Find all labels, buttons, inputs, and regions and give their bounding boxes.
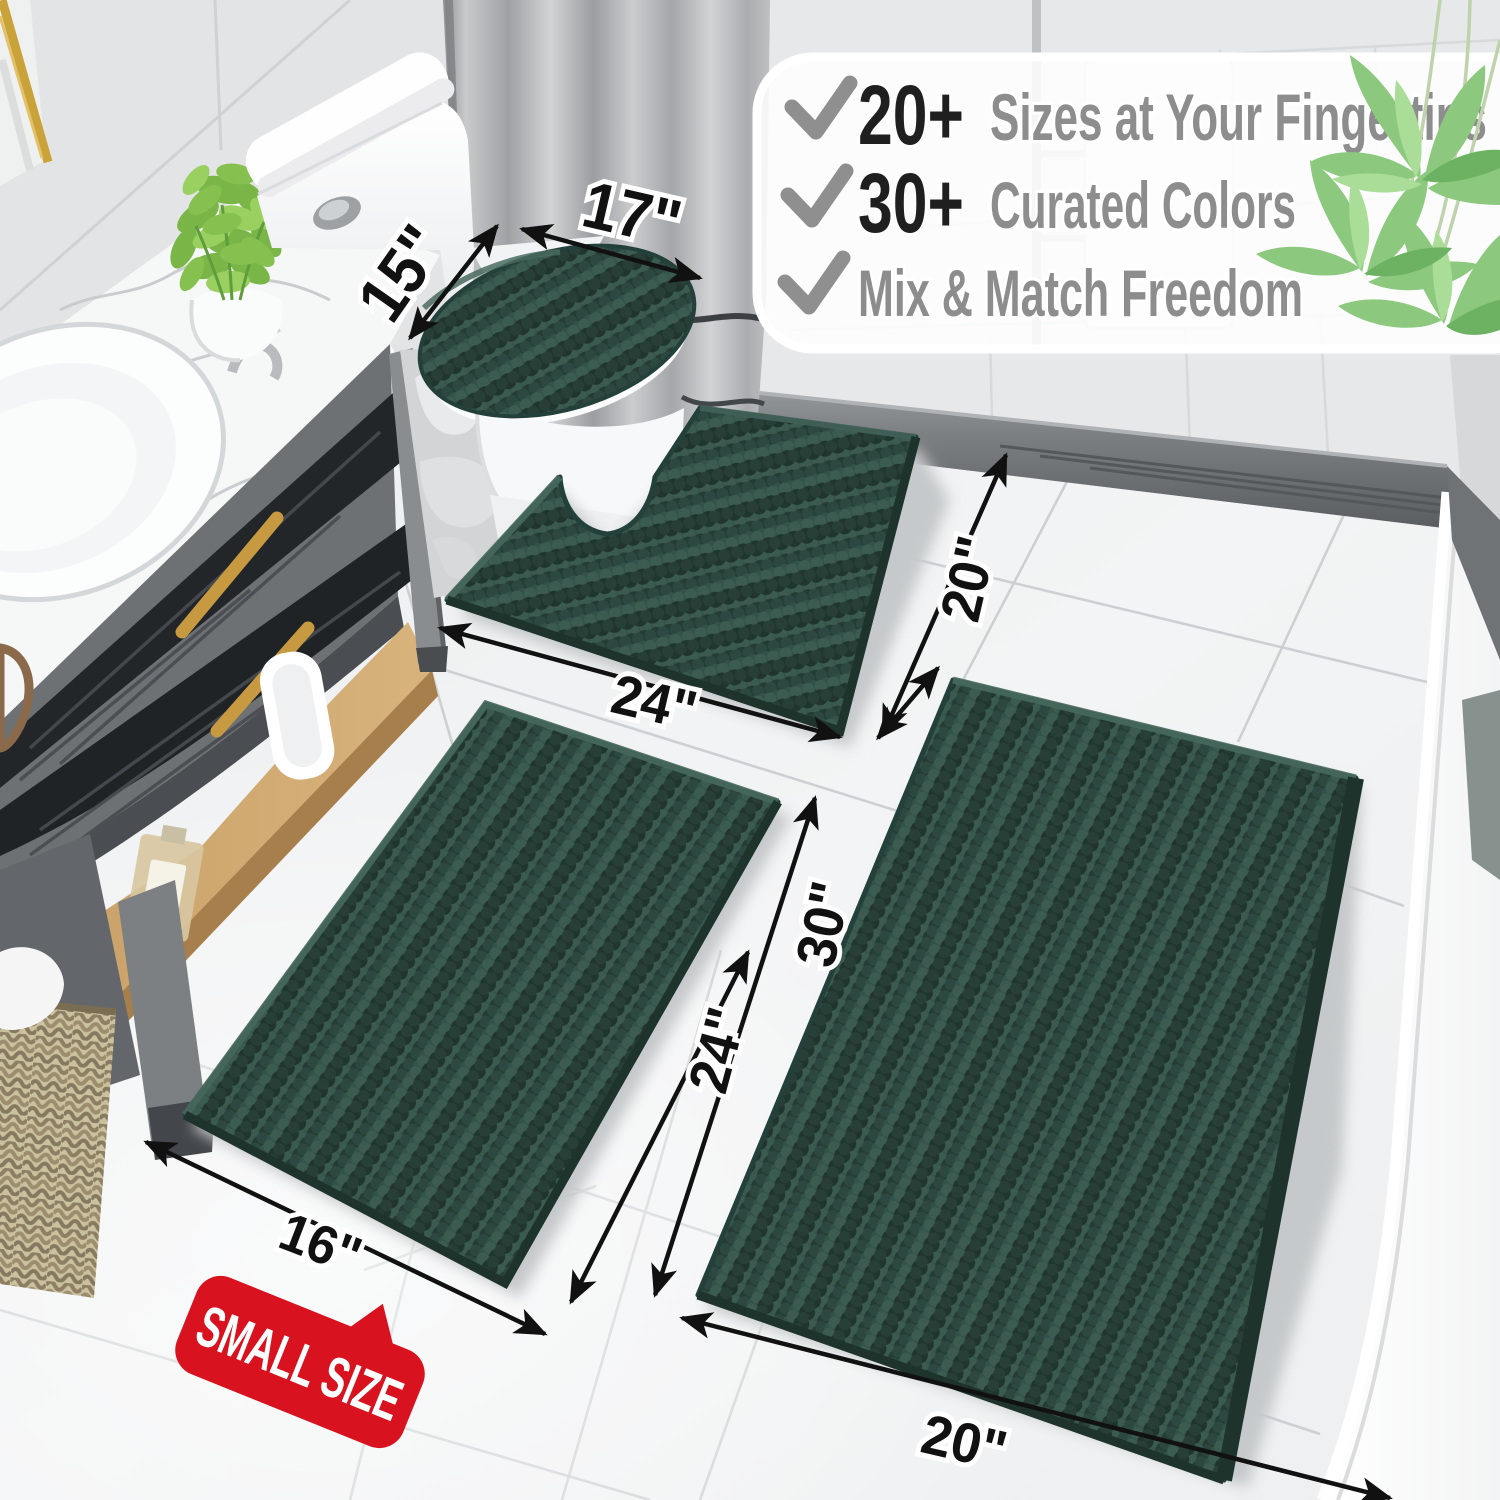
svg-text:Mix & Match Freedom: Mix & Match Freedom bbox=[858, 256, 1303, 330]
svg-text:Curated Colors: Curated Colors bbox=[990, 168, 1296, 242]
svg-text:20+: 20+ bbox=[858, 68, 964, 162]
svg-text:30+: 30+ bbox=[858, 156, 964, 250]
